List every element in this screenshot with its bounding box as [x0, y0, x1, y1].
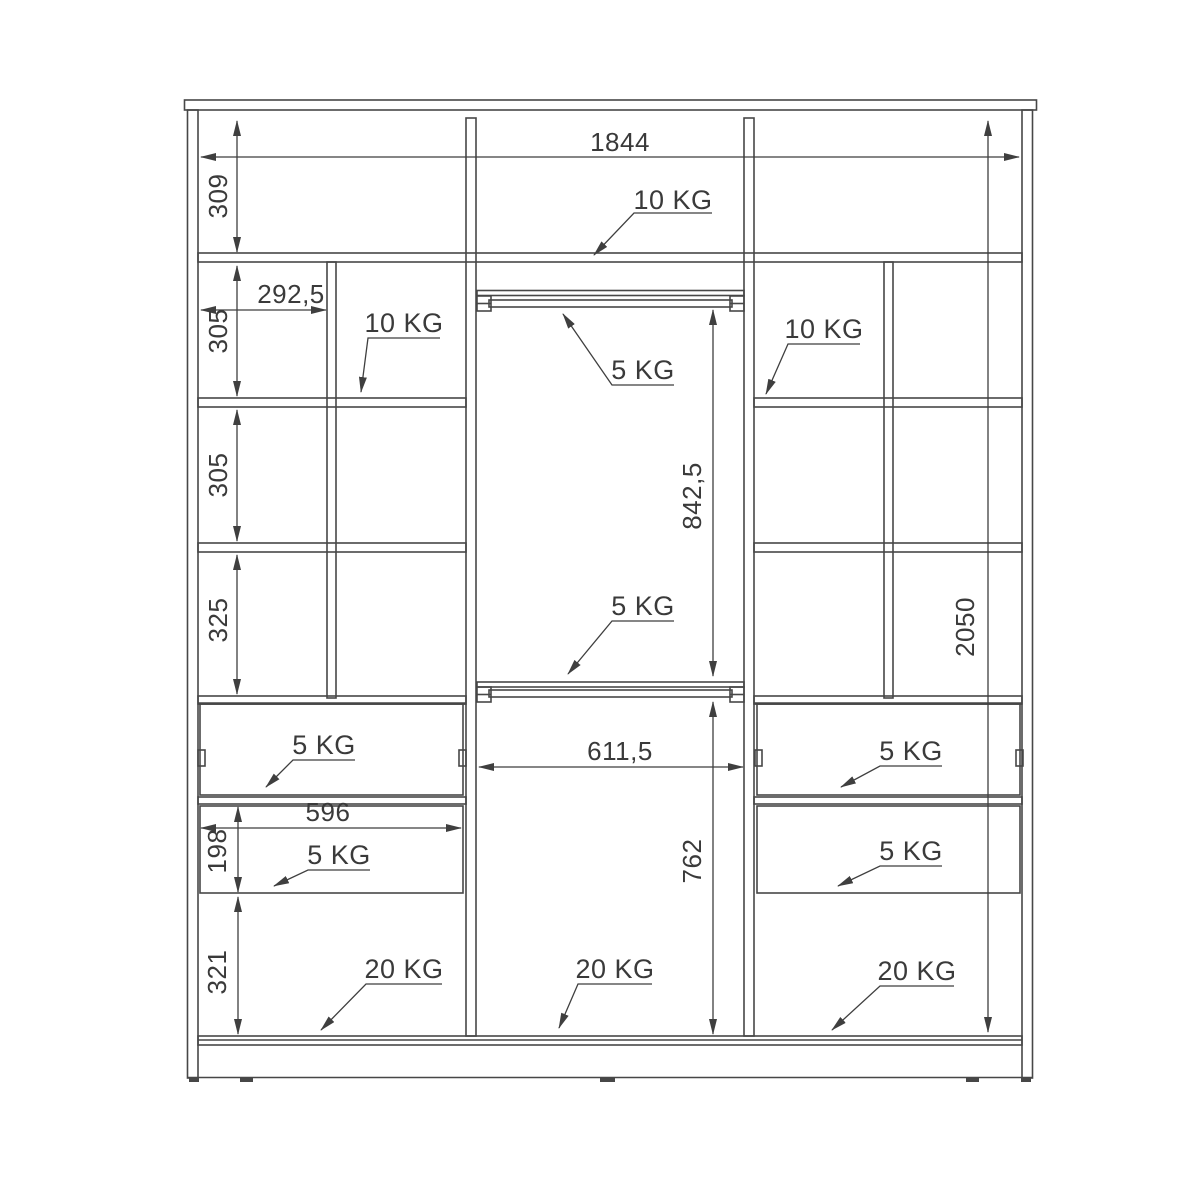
- load-floor-right-value: 20 KG: [877, 956, 956, 986]
- dimension-overall-height-value: 2050: [950, 597, 980, 657]
- top-shelf: [198, 253, 1022, 262]
- load-lower-rail-value: 5 KG: [611, 591, 675, 621]
- right-drawer-band: [754, 797, 1022, 804]
- dimension-overall-width-value: 1844: [590, 127, 650, 157]
- load-label-right-drawer-1: 5 KG: [841, 736, 943, 787]
- load-label-floor-middle: 20 KG: [559, 954, 655, 1028]
- dimension-overall-height: 2050: [950, 121, 988, 1032]
- load-label-floor-left: 20 KG: [321, 954, 444, 1030]
- dimension-middle-upper-height-value: 842,5: [677, 462, 707, 530]
- dimension-drawer-height-value: 198: [202, 829, 232, 874]
- load-label-upper-rail: 5 KG: [563, 314, 675, 385]
- dimension-left-column-width-value: 292,5: [257, 279, 325, 309]
- load-left-drawer-2-value: 5 KG: [307, 840, 371, 870]
- load-label-left-drawer-2: 5 KG: [274, 840, 371, 886]
- load-label-lower-rail: 5 KG: [568, 591, 675, 674]
- dimension-bottom-section-height-value: 321: [202, 950, 232, 995]
- load-left-shelf-value: 10 KG: [364, 308, 443, 338]
- dimension-middle-width: 611,5: [479, 736, 743, 767]
- load-label-left-drawer-1: 5 KG: [266, 730, 356, 787]
- dimension-left-column-width: 292,5: [201, 279, 326, 310]
- dimension-left-row3-height-value: 325: [203, 598, 233, 643]
- right-shelf-2: [754, 543, 1022, 552]
- right-drawer-rail-left: [755, 750, 762, 766]
- wardrobe-technical-diagram: 1844 309 292,5 305 305 325 596 198: [0, 0, 1200, 1200]
- dimension-left-row3-height: 325: [203, 555, 237, 694]
- load-label-floor-right: 20 KG: [832, 956, 957, 1030]
- dimension-middle-upper-height: 842,5: [677, 310, 713, 676]
- dimension-left-row2-height-value: 305: [203, 453, 233, 498]
- load-label-right-shelf: 10 KG: [766, 314, 864, 394]
- load-right-drawer-1-value: 5 KG: [879, 736, 943, 766]
- dimension-overall-width: 1844: [201, 127, 1019, 157]
- load-capacity-annotations: 10 KG 10 KG 10 KG 5 KG 5 KG 5 KG 5 KG 5: [266, 185, 957, 1030]
- load-right-drawer-2-value: 5 KG: [879, 836, 943, 866]
- right-shelf-1: [754, 398, 1022, 407]
- dimension-middle-lower-height-value: 762: [677, 839, 707, 884]
- left-side-panel: [188, 110, 199, 1078]
- lower-hanging-rail: [477, 682, 744, 702]
- load-label-left-shelf: 10 KG: [361, 308, 444, 392]
- left-shelf-2: [198, 543, 466, 552]
- sub-divider-right-section: [884, 262, 893, 698]
- dimension-left-row1-height-value: 305: [203, 309, 233, 354]
- sub-divider-left-section: [327, 262, 336, 698]
- dimension-middle-width-value: 611,5: [587, 736, 653, 766]
- load-right-shelf-value: 10 KG: [784, 314, 863, 344]
- load-left-drawer-1-value: 5 KG: [292, 730, 356, 760]
- upper-hanging-rail: [477, 291, 744, 312]
- load-floor-left-value: 20 KG: [364, 954, 443, 984]
- dimension-drawer-width-value: 596: [306, 797, 351, 827]
- dimension-middle-lower-height: 762: [677, 702, 713, 1034]
- right-side-panel: [1022, 110, 1033, 1078]
- diagram-svg: 1844 309 292,5 305 305 325 596 198: [0, 0, 1200, 1200]
- dimension-drawer-width: 596: [201, 797, 461, 828]
- load-top-shelf-value: 10 KG: [633, 185, 712, 215]
- top-panel: [185, 100, 1037, 110]
- left-shelf-1: [198, 398, 466, 407]
- dimension-top-section-height-value: 309: [203, 174, 233, 219]
- load-label-right-drawer-2: 5 KG: [838, 836, 943, 886]
- dimension-left-row1-height: 305: [203, 266, 237, 396]
- foot-left-corner: [189, 1078, 199, 1082]
- dimension-top-section-height: 309: [203, 121, 237, 252]
- foot-right: [966, 1078, 979, 1082]
- dimension-drawer-height: 198: [202, 807, 238, 892]
- foot-right-corner: [1021, 1078, 1031, 1082]
- load-label-top-shelf: 10 KG: [594, 185, 713, 255]
- foot-left: [240, 1078, 253, 1082]
- dimension-annotations: 1844 309 292,5 305 305 325 596 198: [201, 121, 1019, 1034]
- load-floor-middle-value: 20 KG: [575, 954, 654, 984]
- left-drawer-rail-left: [198, 750, 205, 766]
- dimension-left-row2-height: 305: [203, 410, 237, 541]
- foot-middle: [600, 1078, 615, 1082]
- dimension-bottom-section-height: 321: [202, 897, 238, 1034]
- divider-middle-right: [744, 118, 754, 1036]
- load-upper-rail-value: 5 KG: [611, 355, 675, 385]
- divider-middle-left: [466, 118, 476, 1036]
